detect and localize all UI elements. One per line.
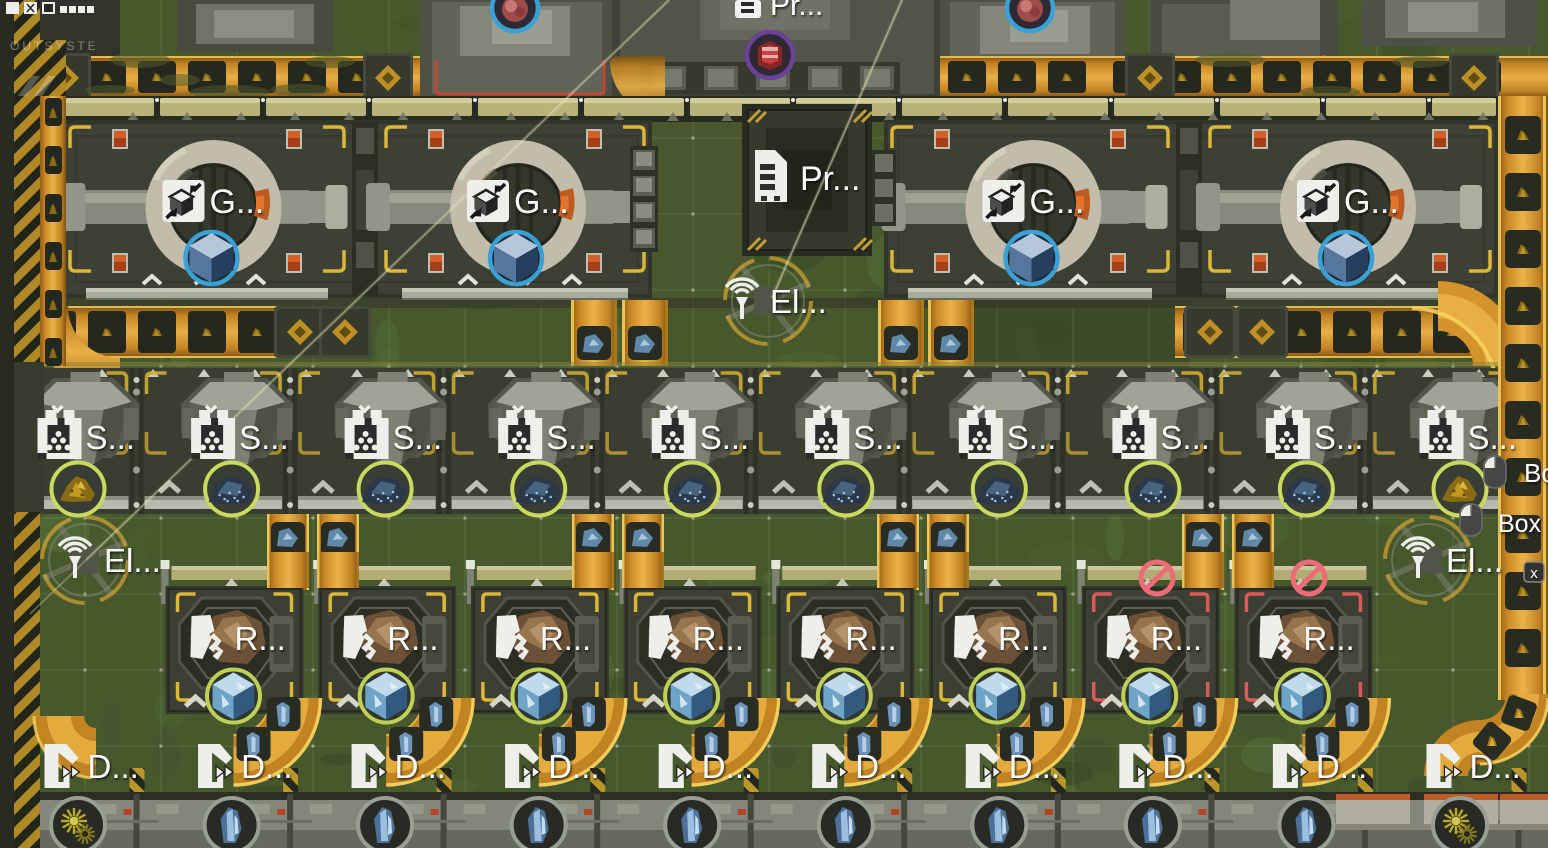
svg-text:Pr...: Pr... xyxy=(770,0,823,22)
